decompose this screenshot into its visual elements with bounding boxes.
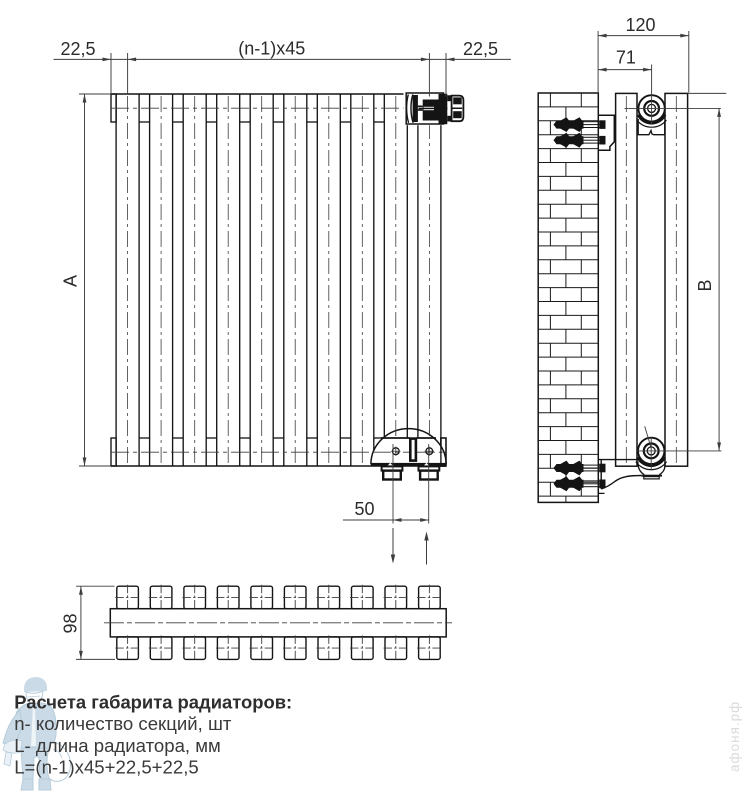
svg-text:22,5: 22,5 <box>60 39 95 59</box>
svg-text:22,5: 22,5 <box>463 39 498 59</box>
svg-text:B: B <box>695 279 715 291</box>
svg-text:L- длина радиатора, мм: L- длина радиатора, мм <box>14 735 221 756</box>
svg-text:120: 120 <box>625 15 655 35</box>
svg-text:50: 50 <box>354 499 374 519</box>
svg-text:n- количество секций, шт: n- количество секций, шт <box>14 713 232 734</box>
svg-text:A: A <box>61 275 81 287</box>
svg-text:афоня.рф: афоня.рф <box>727 701 742 772</box>
svg-text:Расчета габарита радиаторов:: Расчета габарита радиаторов: <box>14 692 292 713</box>
svg-text:L=(n-1)x45+22,5+22,5: L=(n-1)x45+22,5+22,5 <box>14 757 199 778</box>
svg-text:(n-1)x45: (n-1)x45 <box>238 39 305 59</box>
svg-text:71: 71 <box>616 48 636 68</box>
svg-text:98: 98 <box>61 613 81 633</box>
